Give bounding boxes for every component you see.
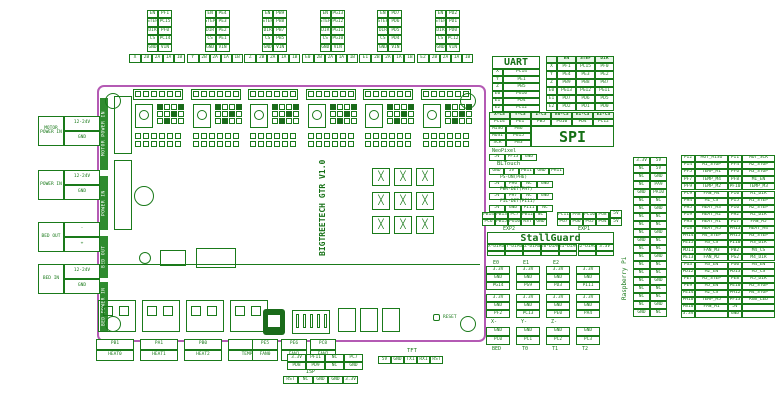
socket-pin xyxy=(201,91,207,97)
smd-pad xyxy=(143,133,149,139)
smd-pad xyxy=(236,111,242,117)
expansion-pin: HEAT_M2 xyxy=(695,212,728,219)
sd-slot-pin xyxy=(317,314,320,328)
reset-label: RESET xyxy=(443,316,457,321)
connector-pin xyxy=(147,306,157,316)
endstop-pin: PC13 xyxy=(516,310,540,318)
expansion-pin: M3_EN xyxy=(695,262,728,269)
driver-pin-name: CS xyxy=(320,35,331,43)
smd-pad xyxy=(215,104,221,110)
smd-pad xyxy=(178,104,184,110)
endstop-pin: PF2 xyxy=(486,310,510,318)
spi-signal: PG15 xyxy=(506,133,531,140)
driver-pin-value: PF0 xyxy=(158,27,172,35)
driver-chip-marker xyxy=(197,110,207,120)
expansion-pin: HEAT_M1 xyxy=(695,219,728,226)
smd-pad xyxy=(175,133,181,139)
smd-pad xyxy=(459,118,465,124)
smd-pad xyxy=(330,118,336,124)
smd-pad xyxy=(423,133,429,139)
smd-pad xyxy=(381,133,387,139)
stallguard-spare xyxy=(505,251,523,256)
expansion-pin: PD13 xyxy=(728,269,742,276)
exp-pin: GND xyxy=(534,219,547,226)
endstop-pin: GND xyxy=(546,302,570,310)
motor-coil-cell: 2A xyxy=(267,54,278,63)
expansion-pin: PI8 xyxy=(681,226,695,233)
expansion-pin: PD11 xyxy=(681,247,695,254)
smd-pad xyxy=(225,141,231,147)
socket-pin xyxy=(159,91,165,97)
expansion-pin: PI7 xyxy=(728,219,742,226)
smd-pad xyxy=(222,118,228,124)
smd-pad xyxy=(401,111,407,117)
spi-signal: PB3 xyxy=(506,140,531,147)
smd-pad xyxy=(159,133,165,139)
socket-pin xyxy=(439,91,445,97)
connector-pin xyxy=(191,306,201,316)
smd-pad xyxy=(455,133,461,139)
expansion-pin: FAN_M5 xyxy=(742,219,775,226)
smd-pad xyxy=(452,118,458,124)
endstop-pin: GND xyxy=(516,274,540,282)
rpi-pin: NC xyxy=(633,173,650,181)
motor-coil-cell: 1A xyxy=(451,54,462,63)
mosfet-block: ╳ xyxy=(394,168,412,186)
smd-pad xyxy=(215,118,221,124)
reset-button[interactable] xyxy=(433,314,440,321)
smd-pad xyxy=(164,104,170,110)
motor-coil-cell: 2A xyxy=(152,54,163,63)
esd-pin: PE3 xyxy=(576,71,595,79)
smd-pad xyxy=(233,141,239,147)
exp-pin: PG5 xyxy=(583,219,596,226)
motor-coil-cell: 1B xyxy=(289,54,300,63)
connector-pin xyxy=(251,306,261,316)
endstop-pin: GND xyxy=(516,302,540,310)
smd-pad xyxy=(293,118,299,124)
endstop-pin: GND xyxy=(486,274,510,282)
isp-pin: RST xyxy=(283,376,298,384)
smd-pad xyxy=(290,133,296,139)
socket-pin xyxy=(423,91,429,97)
board-edge-bar: BED OUT xyxy=(100,236,108,278)
smd-pad xyxy=(401,118,407,124)
stallguard-spare xyxy=(578,251,596,256)
rpi-pin: GND xyxy=(650,253,667,261)
rpi-pin: 5V xyxy=(650,165,667,173)
expansion-pin: HEAT_M5 xyxy=(695,226,728,233)
expansion-pin: RGB_LED xyxy=(742,297,775,304)
smd-pad xyxy=(455,141,461,147)
smd-pad xyxy=(157,118,163,124)
esd-pin: E0 xyxy=(546,87,557,95)
smd-pad xyxy=(447,133,453,139)
expansion-pin: FAN_M2 xyxy=(695,254,728,261)
expansion-pin: PE14 xyxy=(681,290,695,297)
rpi-pin: NC xyxy=(650,269,667,277)
mosfet-block: ╳ xyxy=(372,216,390,234)
smd-pad xyxy=(167,133,173,139)
thermistor-pin: GND xyxy=(516,327,540,336)
spi-cs-pin: PC14 xyxy=(489,119,510,126)
driver-name: E0 xyxy=(302,54,314,63)
endstop-pin: GND xyxy=(546,274,570,282)
smd-pad xyxy=(348,141,354,147)
thermistor-pin: PC0 xyxy=(486,336,510,345)
expansion-pin: PF8 xyxy=(728,176,742,183)
bltouch-pin: PB11 xyxy=(519,168,534,175)
heater-label: HEAT0 xyxy=(96,350,134,361)
smd-pad xyxy=(229,111,235,117)
smd-pad xyxy=(316,133,322,139)
smd-pad xyxy=(286,118,292,124)
power-label-title: POWER IN xyxy=(38,170,64,200)
driver-pin-name: EN xyxy=(377,10,388,18)
rpi-pin: NC xyxy=(650,197,667,205)
driver-pin-value: PC12 xyxy=(446,35,460,43)
smd-pad xyxy=(394,104,400,110)
smd-pad xyxy=(286,111,292,117)
driver-pin-value: PE4 xyxy=(216,10,230,18)
smd-pad xyxy=(389,133,395,139)
wifi-pin: PC7 xyxy=(344,354,363,362)
smd-pad xyxy=(397,133,403,139)
motor-coil-cell: 1B xyxy=(462,54,473,63)
expansion-pin: TEMP_M2 xyxy=(695,183,728,190)
expansion-pin: 3.3V xyxy=(681,311,695,318)
expansion-pin: PI6 xyxy=(728,205,742,212)
smd-pad xyxy=(463,133,469,139)
motor-coil-cell: 2B xyxy=(256,54,267,63)
driver-pin-name: STEP xyxy=(320,18,331,26)
spi-signal: PB6 xyxy=(506,126,531,133)
power-label-value: 12-24V xyxy=(64,264,100,279)
expansion-pin: PB2 xyxy=(728,247,742,254)
smd-pad xyxy=(330,111,336,117)
expansion-pin: M1_EN xyxy=(742,176,775,183)
smd-pad xyxy=(193,133,199,139)
smd-pad xyxy=(351,111,357,117)
driver-pin-value: PD6 xyxy=(388,18,402,26)
expansion-pin: M2_EN xyxy=(695,269,728,276)
isp-pin: NC xyxy=(298,376,313,384)
smd-pad xyxy=(340,133,346,139)
mosfet-block: ╳ xyxy=(394,192,412,210)
aux-connector-pin: GND xyxy=(505,205,521,212)
motor-coil-cell: 1A xyxy=(393,54,404,63)
spi-cs-header: E0-CS xyxy=(551,112,572,119)
board-title: BIGTREETECH GTR V1.0 xyxy=(318,148,334,268)
mosfet-block: ╳ xyxy=(394,216,412,234)
socket-pin xyxy=(405,91,411,97)
socket-pin xyxy=(381,91,387,97)
esd-pin: PD0 xyxy=(595,103,614,111)
stallguard-table-title: StallGuard xyxy=(487,232,614,244)
smd-pad xyxy=(201,141,207,147)
board-edge-bar: POWER IN xyxy=(100,176,108,230)
heater-label: HEAT2 xyxy=(184,350,222,361)
driver-pin-value: VIN xyxy=(158,44,172,52)
smd-pad xyxy=(282,133,288,139)
spi-cs-pin: PC12 xyxy=(593,119,614,126)
smd-pad xyxy=(447,141,453,147)
motor-coil-cell: 1A xyxy=(336,54,347,63)
expansion-pin: HEAT_M4 xyxy=(742,226,775,233)
stallguard-pin: X-DIAG xyxy=(487,244,505,251)
exp-pin: PG4 xyxy=(596,219,609,226)
expansion-pin: M3_STOP xyxy=(742,169,775,176)
driver-pin-name: GND xyxy=(262,44,273,52)
endstop-pin: 3.3V xyxy=(516,294,540,302)
expansion-pin: PE9 xyxy=(681,283,695,290)
tft-label: TFT xyxy=(407,349,417,355)
rpi-pin: NC xyxy=(633,245,650,253)
expansion-pin: M2_DIR xyxy=(742,212,775,219)
driver-pin-name: STEP xyxy=(147,18,158,26)
driver-pin-name: CS xyxy=(377,35,388,43)
motor-coil-cell: 1B xyxy=(404,54,415,63)
expansion-pin: M4_STOP xyxy=(742,290,775,297)
endstop-label xyxy=(581,320,601,325)
driver-pin-value: PF1 xyxy=(158,10,172,18)
expansion-pin: M2_CS xyxy=(695,290,728,297)
driver-pin-name: GND xyxy=(377,44,388,52)
expansion-pin: TEMP_M5 xyxy=(695,297,728,304)
spi-cs-header: E2-CS xyxy=(593,112,614,119)
driver-name: E1 xyxy=(359,54,371,63)
uart-pin: PE1 xyxy=(503,76,540,83)
socket-pin xyxy=(167,91,173,97)
endstop-pin: GND xyxy=(576,302,600,310)
mosfet-block: ╳ xyxy=(416,192,434,210)
motor-coil-cell: 2A xyxy=(382,54,393,63)
rpi-pin: PA9 xyxy=(650,181,667,189)
esd-pin: PB8 xyxy=(576,79,595,87)
driver-pin-name: CS xyxy=(205,35,216,43)
rpi-pin: 3.3V xyxy=(633,157,650,165)
stallguard-pin: E2-DIAG xyxy=(578,244,596,251)
driver-pin-value: PD7 xyxy=(388,10,402,18)
smd-pad xyxy=(463,141,469,147)
expansion-pin: PC9 xyxy=(681,191,695,198)
expansion-pin: PF4 xyxy=(728,162,742,169)
smd-pad xyxy=(394,111,400,117)
socket-pin xyxy=(135,91,141,97)
driver-pin-value: VIN xyxy=(446,44,460,52)
motor-coil-cell: 1B xyxy=(232,54,243,63)
driver-pin-name: EN xyxy=(262,10,273,18)
driver-name: Z xyxy=(244,54,256,63)
smd-pad xyxy=(233,133,239,139)
neopixel-pin: 5V xyxy=(489,154,505,161)
expansion-pin: M1_STEP xyxy=(742,198,775,205)
smd-pad xyxy=(445,104,451,110)
driver-pin-value: PD1 xyxy=(446,18,460,26)
expansion-pin: PH14 xyxy=(681,233,695,240)
driver-name: X xyxy=(129,54,141,63)
bltouch-pin: PH11 xyxy=(549,168,564,175)
expansion-pin: MOT_SCK xyxy=(742,155,775,162)
expansion-pin: M5_EN xyxy=(695,283,728,290)
power-label-title: MOTOR POWER IN xyxy=(38,116,64,146)
expansion-pin: PG2 xyxy=(728,254,742,261)
esd-pin: PG11 xyxy=(595,87,614,95)
smd-pad xyxy=(408,118,414,124)
thermistor-label: BED xyxy=(492,347,512,352)
smd-pad xyxy=(135,133,141,139)
esd-pin: Z xyxy=(546,79,557,87)
expansion-pin: PB10 xyxy=(681,304,695,311)
driver-pin-name: DIR xyxy=(320,27,331,35)
stallguard-spare xyxy=(541,251,559,256)
smd-pad xyxy=(279,111,285,117)
uart-axis: Y xyxy=(492,76,503,83)
smd-pad xyxy=(365,133,371,139)
rpi-pin: NC xyxy=(633,165,650,173)
smd-pad xyxy=(279,104,285,110)
smd-pad xyxy=(171,111,177,117)
expansion-pin: TEMP_M4 xyxy=(695,176,728,183)
expansion-pin: PH3 xyxy=(681,219,695,226)
mcu-chip xyxy=(196,248,236,268)
rpi-pin: NC xyxy=(633,229,650,237)
smd-pad xyxy=(229,118,235,124)
driver-pin-value: PE1 xyxy=(216,35,230,43)
socket-pin xyxy=(340,91,346,97)
aux-connector-pin: 5V xyxy=(489,205,505,212)
smd-pad xyxy=(394,118,400,124)
motor-coil-cell: 2B xyxy=(371,54,382,63)
aux-connector-pin: NC xyxy=(537,205,553,212)
smd-pad xyxy=(157,111,163,117)
neopixel-pin: GND xyxy=(521,154,537,161)
smd-pad xyxy=(344,104,350,110)
spi-cs-header: E1-CS xyxy=(572,112,593,119)
driver-pin-name: DIR xyxy=(205,27,216,35)
motor-coil-cell: 2B xyxy=(429,54,440,63)
smd-pad xyxy=(258,141,264,147)
driver-pin-value: PC14 xyxy=(158,35,172,43)
expansion-pin: TEMP_M3 xyxy=(742,183,775,190)
driver-pin-name: STEP xyxy=(435,18,446,26)
expansion-pin: FAN_M3 xyxy=(695,247,728,254)
esd-pin: E2 xyxy=(546,103,557,111)
expansion-pin: GND xyxy=(728,311,742,318)
sd-slot-pin xyxy=(324,314,327,328)
power-label-value: + xyxy=(64,237,100,252)
driver-chip-marker xyxy=(139,110,149,120)
smd-pad xyxy=(324,133,330,139)
smd-pad xyxy=(466,104,472,110)
driver-pin-value: PD4 xyxy=(388,35,402,43)
driver-pin-value: PE2 xyxy=(216,27,230,35)
driver-pin-value: PB9 xyxy=(273,10,287,18)
endstop-pin: 3.3V xyxy=(576,266,600,274)
expansion-pin: M1_DIR xyxy=(742,191,775,198)
smd-pad xyxy=(175,141,181,147)
expansion-pin: PI9 xyxy=(681,212,695,219)
socket-pin xyxy=(431,91,437,97)
smd-pad xyxy=(373,141,379,147)
mosfet-block: ╳ xyxy=(372,192,390,210)
expansion-pin: M1_CS xyxy=(695,198,728,205)
esd-pin: PC15 xyxy=(576,63,595,71)
spi-cs-header: Y-CS xyxy=(510,112,531,119)
expansion-pin: PH12 xyxy=(728,290,742,297)
endstop-pin: 3.3V xyxy=(576,294,600,302)
exp-pin: NC xyxy=(534,212,547,219)
esd-header xyxy=(546,56,557,63)
expansion-pin: 5V xyxy=(728,304,742,311)
motor-coil-cell: 2B xyxy=(141,54,152,63)
smd-pad xyxy=(408,111,414,117)
socket-pin xyxy=(193,91,199,97)
sd-slot-pin xyxy=(303,314,306,328)
tft-pin: RX1 xyxy=(417,356,430,364)
spi-signal: MISO xyxy=(489,126,506,133)
expansion-pin: M3_DIR xyxy=(742,240,775,247)
smd-pad xyxy=(217,133,223,139)
expansion-pin: PF5 xyxy=(681,169,695,176)
smd-pad xyxy=(274,133,280,139)
driver-pin-name: GND xyxy=(435,44,446,52)
driver-pin-name: DIR xyxy=(435,27,446,35)
smd-pad xyxy=(401,104,407,110)
rpi-pin: NC xyxy=(633,293,650,301)
socket-pin xyxy=(397,91,403,97)
smd-pad xyxy=(159,141,165,147)
driver-pin-name: EN xyxy=(205,10,216,18)
driver-pin-value: PG11 xyxy=(331,27,345,35)
smd-pad xyxy=(151,133,157,139)
endstop-pin: PA4 xyxy=(576,310,600,318)
rpi-pin: NC xyxy=(633,285,650,293)
isp-pin: GND xyxy=(313,376,328,384)
thermistor-pin: GND xyxy=(486,327,510,336)
smd-pad xyxy=(332,133,338,139)
socket-pin xyxy=(389,91,395,97)
exp-pin: PC6 xyxy=(482,219,495,226)
expansion-pin: M4_STEP xyxy=(695,233,728,240)
expansion-pin: PI1 xyxy=(728,155,742,162)
spi-cs-pin: PG10 xyxy=(551,119,572,126)
smd-pad xyxy=(452,111,458,117)
esd-header: EN xyxy=(557,56,576,63)
motor-coil-cell: 1B xyxy=(347,54,358,63)
driver-pin-value: PG13 xyxy=(331,10,345,18)
driver-pin-name: DIR xyxy=(377,27,388,35)
expansion-pin: PI2 xyxy=(681,155,695,162)
exp-pin: PG10 xyxy=(508,219,521,226)
tft-pin: 5V xyxy=(378,356,391,364)
smd-pad xyxy=(282,141,288,147)
driver-pin-name: DIR xyxy=(147,27,158,35)
power-label-title: BED OUT xyxy=(38,222,64,252)
motor-coil-cell: 1A xyxy=(221,54,232,63)
socket-pin xyxy=(143,91,149,97)
esd-pin: PE2 xyxy=(595,71,614,79)
smd-pad xyxy=(439,141,445,147)
driver-pin-name: GND xyxy=(320,44,331,52)
bltouch-pin: 5V xyxy=(504,168,519,175)
smd-pad xyxy=(452,104,458,110)
smd-pad xyxy=(272,118,278,124)
isp-pin: GND xyxy=(328,376,343,384)
rpi-pin: NC xyxy=(633,205,650,213)
spi-signal: SCK xyxy=(489,140,506,147)
rpi-pin: NC xyxy=(633,213,650,221)
